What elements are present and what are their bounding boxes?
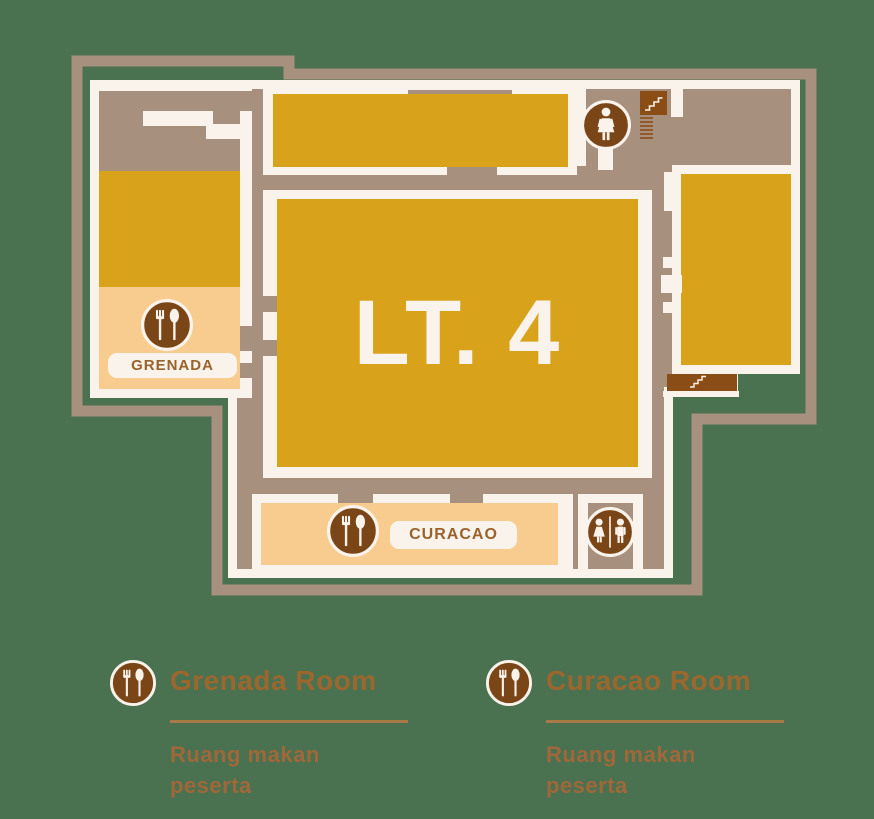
legend-subtitle-line: Ruang makan [546, 739, 796, 770]
legend-subtitle: Ruang makan peserta [546, 739, 796, 801]
legend-item-curacao: Curacao Room Ruang makan peserta [486, 655, 796, 801]
woman-restroom-icon [581, 100, 631, 150]
fork-spoon-icon [141, 299, 193, 351]
fork-spoon-icon [486, 660, 532, 706]
stairs-bottom [663, 374, 739, 397]
grenada-room-label: GRENADA [108, 353, 237, 378]
floor-title: LT. 4 [277, 199, 638, 467]
legend-subtitle-line: peserta [546, 770, 796, 801]
fork-spoon-icon [327, 505, 379, 557]
grenada-restaurant-marker [141, 299, 193, 351]
unisex-restroom-icon [585, 507, 635, 557]
legend-subtitle-line: Ruang makan [170, 739, 420, 770]
women-restroom-marker [581, 100, 631, 150]
top-room [263, 85, 577, 175]
unisex-restroom-marker [585, 507, 635, 557]
curacao-room-label: CURACAO [390, 521, 517, 549]
legend-divider [170, 720, 408, 723]
right-room [661, 165, 800, 374]
legend-subtitle: Ruang makan peserta [170, 739, 420, 801]
legend-item-grenada: Grenada Room Ruang makan peserta [110, 655, 420, 801]
curacao-restaurant-marker [327, 505, 379, 557]
fork-spoon-icon [110, 660, 156, 706]
legend-title: Grenada Room [170, 665, 377, 697]
legend-subtitle-line: peserta [170, 770, 420, 801]
legend-title: Curacao Room [546, 665, 751, 697]
floor-plan-page: LT. 4 GRENADA CURACAO [0, 0, 874, 819]
legend-divider [546, 720, 784, 723]
